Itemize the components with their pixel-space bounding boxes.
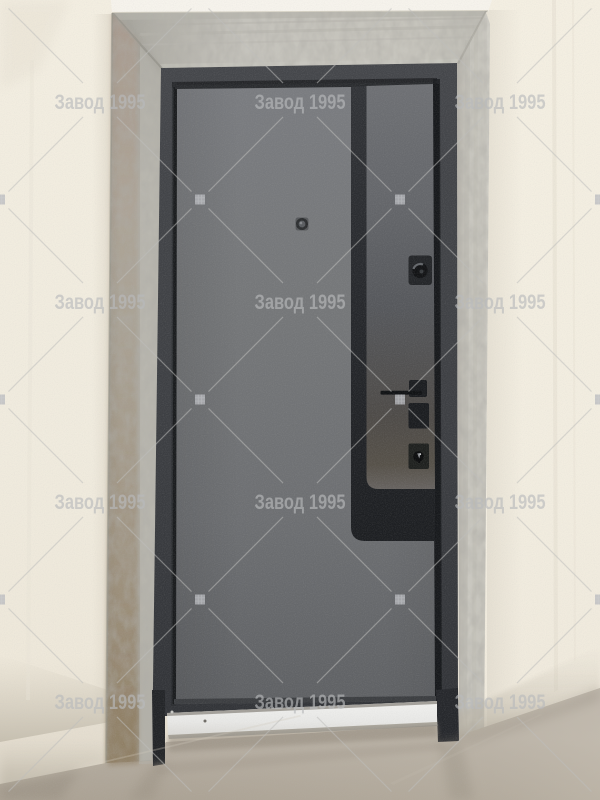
- svg-text:Завод 1995: Завод 1995: [455, 291, 546, 314]
- svg-text:Завод 1995: Завод 1995: [55, 91, 146, 114]
- svg-text:Завод 1995: Завод 1995: [55, 491, 146, 514]
- svg-text:Завод 1995: Завод 1995: [55, 291, 146, 314]
- svg-text:Завод 1995: Завод 1995: [255, 91, 346, 114]
- svg-text:Завод 1995: Завод 1995: [255, 691, 346, 714]
- svg-text:Завод 1995: Завод 1995: [55, 691, 146, 714]
- svg-text:Завод 1995: Завод 1995: [455, 491, 546, 514]
- svg-text:Завод 1995: Завод 1995: [255, 291, 346, 314]
- svg-text:Завод 1995: Завод 1995: [455, 691, 546, 714]
- svg-text:Завод 1995: Завод 1995: [255, 491, 346, 514]
- svg-text:Завод 1995: Завод 1995: [455, 91, 546, 114]
